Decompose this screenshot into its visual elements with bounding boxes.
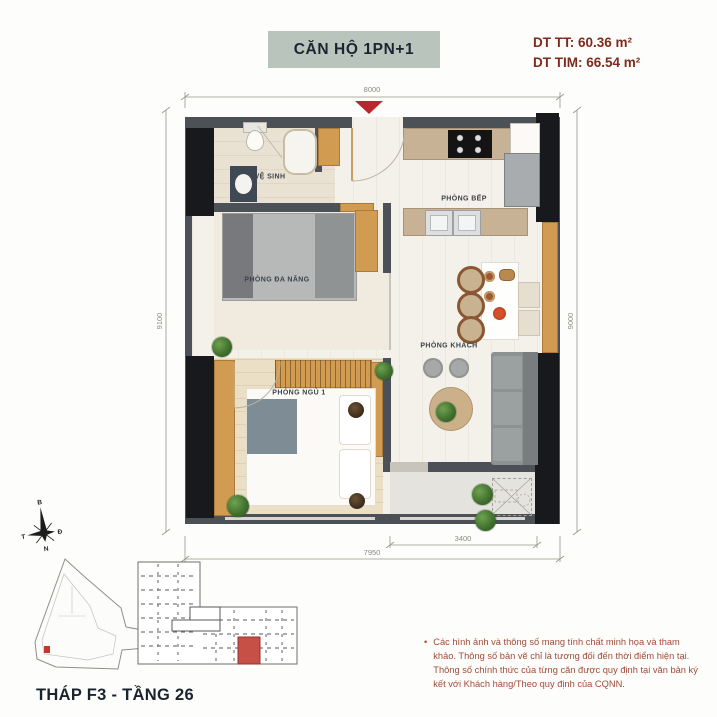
highlighted-unit xyxy=(238,637,260,664)
bed-pillows xyxy=(223,214,253,298)
sink-right xyxy=(453,210,481,236)
sofa-cushion xyxy=(493,428,522,461)
wood-wall-right xyxy=(542,222,558,353)
area-info: DT TT: 60.36 m² DT TIM: 66.54 m² xyxy=(533,33,640,73)
dining-bench-cushion xyxy=(518,282,540,308)
room-label-kitchen: PHÒNG BẾP xyxy=(441,196,487,203)
plate xyxy=(484,271,495,282)
disclaimer-bullet: • xyxy=(424,636,427,692)
tower-floor-caption: THÁP F3 - TẦNG 26 xyxy=(20,686,210,705)
compass-east: Đ xyxy=(57,528,63,536)
floorplate-locator xyxy=(138,562,297,664)
dim-bottom-total: 7950 xyxy=(364,548,381,557)
bed-pillow xyxy=(339,449,371,499)
column-top-left xyxy=(186,128,214,216)
dining-bench-cushion xyxy=(518,310,540,336)
dim-left: 9100 xyxy=(155,313,164,330)
fridge xyxy=(504,153,540,207)
sink-left xyxy=(425,210,453,236)
balcony-sliding-door xyxy=(390,462,428,472)
room-label-bathroom: VỆ SINH xyxy=(255,174,286,181)
plant-icon xyxy=(475,510,496,531)
compass-north: B xyxy=(37,499,43,507)
site-plan-map xyxy=(35,559,148,669)
multipurpose-bed xyxy=(222,213,357,301)
site-plan-unit-marker xyxy=(44,646,50,653)
unit-title: CĂN HỘ 1PN+1 xyxy=(294,41,414,59)
wall-top-left xyxy=(185,117,352,128)
compass-icon: B Đ N T xyxy=(16,497,65,556)
multipurpose-cabinet xyxy=(355,210,378,272)
coffee-table xyxy=(429,387,473,431)
sink-basin-right xyxy=(458,215,476,231)
compass-west: T xyxy=(21,534,26,541)
column-bottom-right xyxy=(535,353,559,524)
area-gross: DT TIM: 66.54 m² xyxy=(533,53,640,73)
floorplan-page: CĂN HỘ 1PN+1 DT TT: 60.36 m² DT TIM: 66.… xyxy=(0,0,717,717)
bed-throw xyxy=(247,399,297,454)
entrance-marker-icon xyxy=(355,101,383,114)
bedside-stool xyxy=(348,402,364,418)
plant-icon xyxy=(436,402,456,422)
cooktop xyxy=(448,130,492,158)
bedside-stool xyxy=(349,493,365,509)
window-bedroom xyxy=(225,517,375,520)
room-label-multipurpose: PHÒNG ĐA NĂNG xyxy=(244,277,309,284)
floor-plan: VỆ SINH PHÒNG BẾP PHÒNG ĐA NĂNG PHÒNG KH… xyxy=(185,110,560,532)
plant-icon xyxy=(212,337,232,357)
room-label-bedroom1: PHÒNG NGỦ 1 xyxy=(272,390,325,397)
dining-table xyxy=(481,262,519,340)
dim-right: 9000 xyxy=(566,313,575,330)
sofa-cushion xyxy=(493,356,522,389)
sofa-cushion xyxy=(493,392,522,425)
bathtub xyxy=(283,129,317,175)
compass-south: N xyxy=(43,546,49,554)
room-label-living: PHÒNG KHÁCH xyxy=(420,343,477,350)
column-bottom-left xyxy=(186,356,214,518)
toilet xyxy=(246,130,264,151)
dining-chair xyxy=(457,266,485,294)
sink-basin-left xyxy=(430,215,448,231)
red-bowl xyxy=(493,307,506,320)
disclaimer-text: Các hình ảnh và thông số mang tính chất … xyxy=(433,636,704,692)
unit-title-box: CĂN HỘ 1PN+1 xyxy=(268,31,440,68)
entry-closet xyxy=(318,128,340,166)
sink-basin xyxy=(235,174,252,194)
wardrobe-hatch xyxy=(275,360,372,388)
plant-icon xyxy=(472,484,493,505)
window-balcony xyxy=(400,517,525,520)
bed-blanket xyxy=(315,214,354,298)
food-platter xyxy=(499,269,515,281)
dim-top: 8000 xyxy=(364,85,381,94)
dim-bottom-partial: 3400 xyxy=(455,534,472,543)
plant-icon xyxy=(227,495,249,517)
pouf xyxy=(423,358,443,378)
plate xyxy=(484,291,495,302)
dining-chair xyxy=(457,316,485,344)
sofa xyxy=(491,352,538,465)
plant-icon xyxy=(375,362,393,380)
sofa-backrest xyxy=(523,352,538,465)
pouf xyxy=(449,358,469,378)
area-net: DT TT: 60.36 m² xyxy=(533,33,640,53)
disclaimer: • Các hình ảnh và thông số mang tính chấ… xyxy=(424,636,704,692)
wall-bathroom-bottom xyxy=(214,203,340,212)
wall-multi-living xyxy=(383,203,391,273)
washer-outline xyxy=(492,478,532,516)
kitchen-cabinet xyxy=(510,123,540,155)
bedroom-wardrobe-left xyxy=(214,360,235,516)
